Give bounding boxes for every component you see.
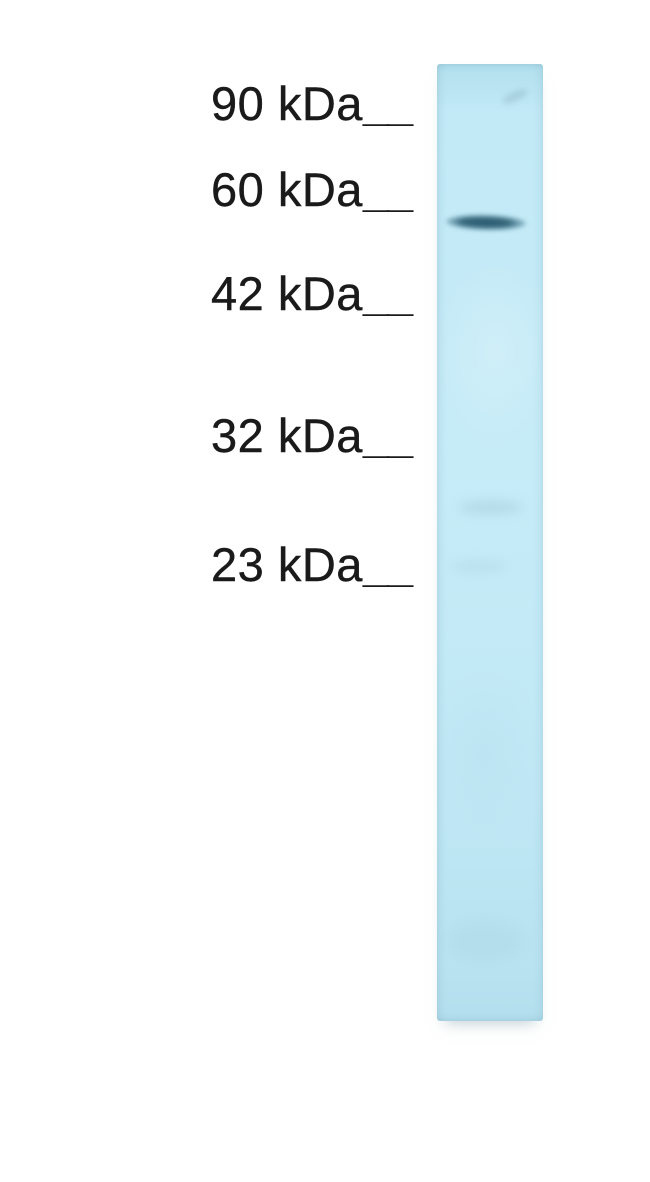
faint-smudge-middle-2: [451, 560, 507, 573]
protein-band-core: [458, 218, 512, 226]
marker-60kda-label: 60 kDa: [211, 163, 363, 216]
faint-smudge-bottom: [447, 920, 525, 962]
marker-42kda-label: 42 kDa: [211, 267, 363, 320]
marker-90kda-tick: __: [363, 77, 411, 130]
marker-23kda: 23 kDa__: [211, 541, 411, 588]
marker-32kda-tick: __: [363, 409, 411, 462]
faint-smudge-middle: [459, 500, 523, 515]
marker-60kda-tick: __: [363, 163, 411, 216]
marker-90kda-label: 90 kDa: [211, 77, 363, 130]
marker-32kda: 32 kDa__: [211, 412, 411, 459]
marker-90kda: 90 kDa__: [211, 80, 411, 127]
blot-lane: [437, 64, 543, 1021]
marker-42kda-tick: __: [363, 267, 411, 320]
faint-smudge-top: [500, 87, 529, 107]
marker-60kda: 60 kDa__: [211, 166, 411, 213]
western-blot-figure: 90 kDa__ 60 kDa__ 42 kDa__ 32 kDa__ 23 k…: [0, 0, 650, 1182]
protein-band: [446, 214, 526, 231]
marker-42kda: 42 kDa__: [211, 270, 411, 317]
marker-32kda-label: 32 kDa: [211, 409, 363, 462]
marker-23kda-tick: __: [363, 538, 411, 591]
marker-23kda-label: 23 kDa: [211, 538, 363, 591]
